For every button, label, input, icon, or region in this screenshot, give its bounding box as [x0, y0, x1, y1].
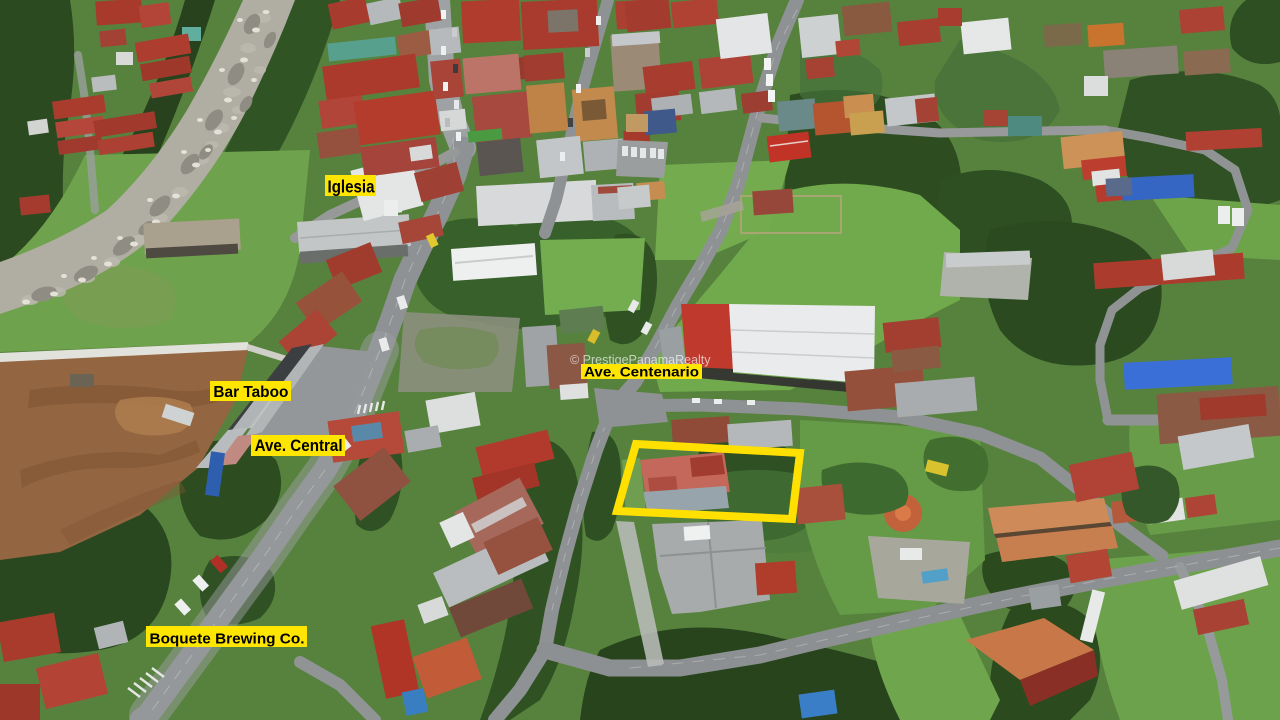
svg-text:Ave. Centenario: Ave. Centenario: [584, 365, 699, 380]
svg-text:Ave. Central: Ave. Central: [255, 437, 343, 455]
svg-text:Iglesia: Iglesia: [328, 176, 375, 196]
svg-text:Boquete Brewing Co.: Boquete Brewing Co.: [150, 631, 305, 648]
svg-text:Bar Taboo: Bar Taboo: [213, 384, 288, 401]
